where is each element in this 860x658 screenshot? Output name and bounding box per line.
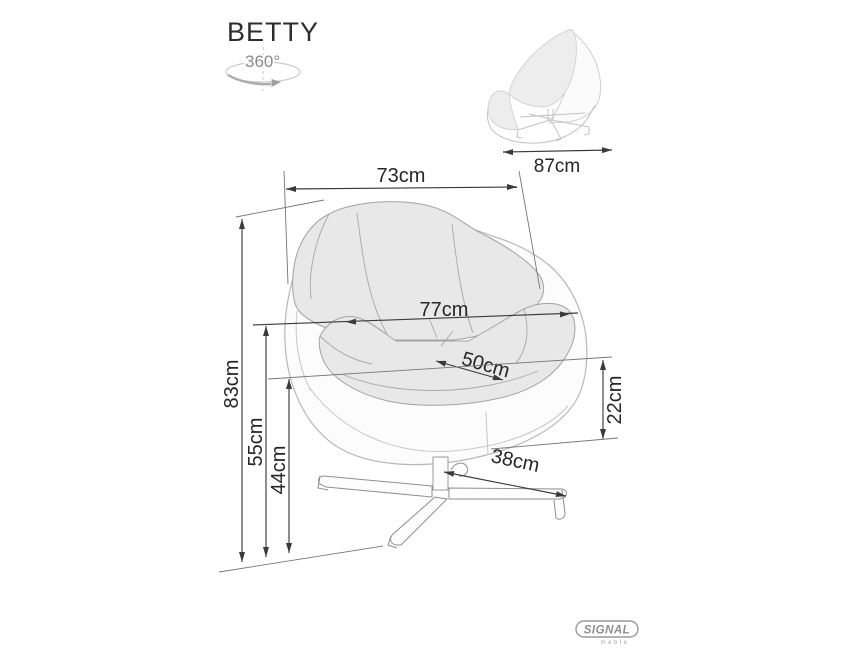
dim-label-total-height: 83cm: [221, 360, 243, 409]
base-right-leg: [449, 488, 566, 499]
dim-arrowhead: [507, 184, 517, 190]
brand-logo-subtext: meble: [601, 640, 630, 646]
dim-label-inner-height: 55cm: [245, 418, 267, 467]
dim-arrowhead: [263, 326, 269, 336]
rotation-arrow-arc: [228, 75, 271, 84]
diagram-svg: BETTY 360°: [0, 0, 860, 658]
dim-label-shell-edge-height: 22cm: [604, 376, 626, 425]
dim-label-depth: 87cm: [534, 156, 580, 177]
product-title: BETTY: [227, 17, 319, 47]
ext-line-total-height-top: [236, 200, 324, 217]
dim-line-top-width: [286, 187, 517, 189]
rotation-label: 360°: [245, 52, 280, 71]
dim-label-seat-height: 44cm: [268, 446, 290, 495]
dim-arrowhead: [263, 547, 269, 557]
base-front-leg: [391, 497, 447, 545]
base-left-leg: [319, 476, 432, 497]
brand-logo: SIGNAL meble: [576, 621, 638, 646]
dim-line-depth: [503, 150, 612, 152]
brand-logo-text: SIGNAL: [584, 625, 630, 637]
rotation-arrowhead: [271, 78, 282, 87]
dim-label-inner-width: 77cm: [420, 299, 469, 321]
base-column: [433, 457, 448, 490]
dim-arrowhead: [602, 147, 612, 153]
rotation-360-icon: 360°: [226, 47, 300, 91]
dim-label-base-leg: 38cm: [489, 445, 541, 477]
dim-arrowhead: [600, 360, 606, 370]
dim-arrowhead: [286, 543, 292, 553]
ext-line-floor: [219, 546, 383, 572]
side-view-chair-drawing: [487, 29, 600, 143]
dim-arrowhead: [600, 429, 606, 439]
dim-arrowhead: [503, 149, 513, 155]
dim-arrowhead: [239, 219, 245, 229]
dim-label-top-width: 73cm: [377, 165, 426, 187]
dim-arrowhead: [239, 552, 245, 562]
side-base-left-leg: [517, 120, 550, 138]
side-base: [517, 109, 589, 141]
dim-arrowhead: [286, 186, 296, 192]
product-dimension-diagram: BETTY 360°: [0, 0, 860, 658]
ext-line-top-width-left: [284, 171, 288, 284]
